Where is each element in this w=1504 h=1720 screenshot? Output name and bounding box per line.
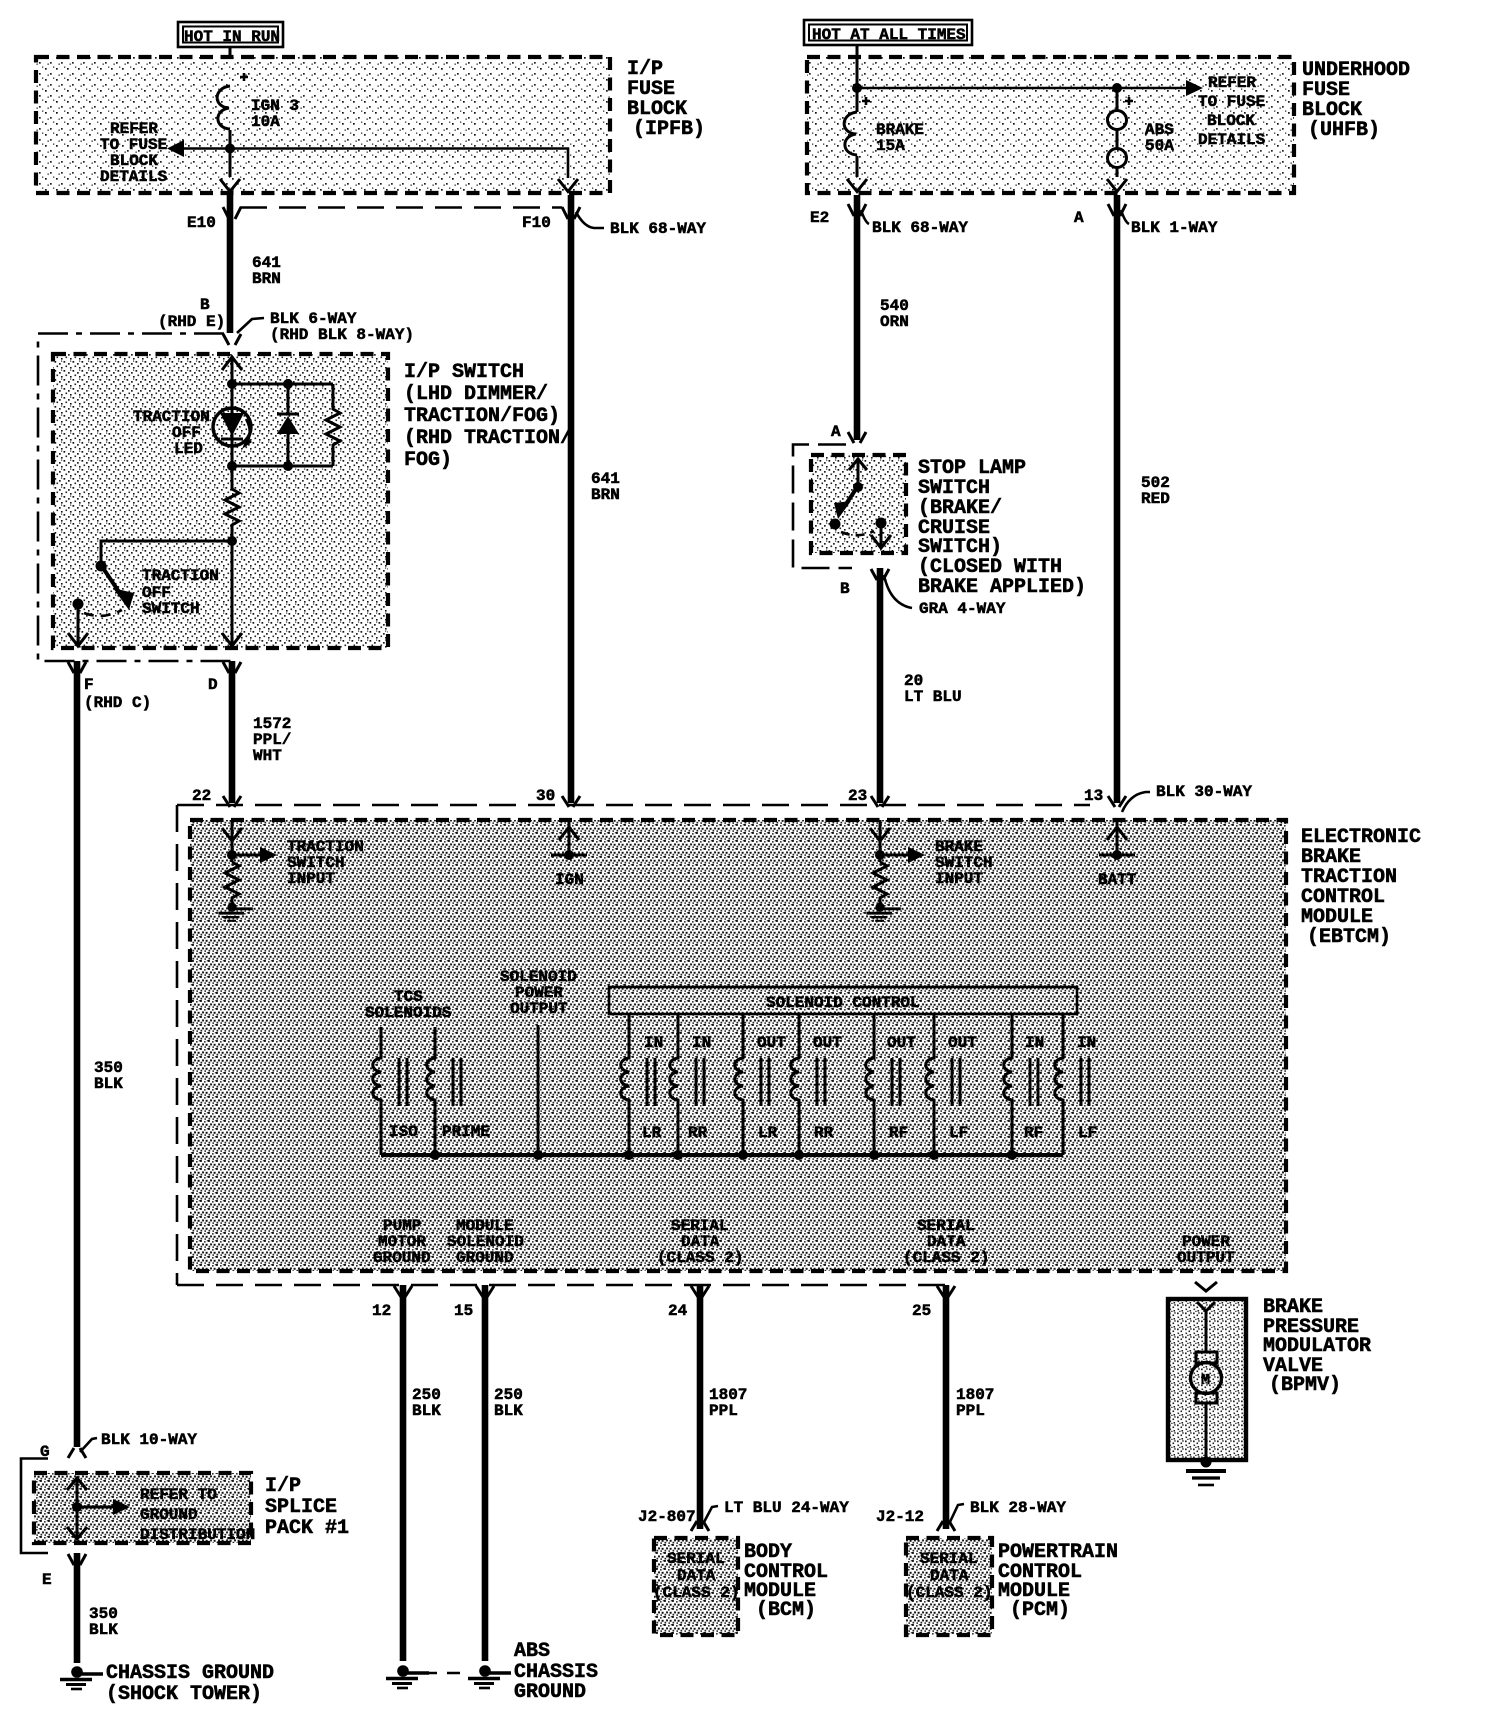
svg-text:IN: IN xyxy=(692,1034,711,1052)
svg-text:OUT: OUT xyxy=(813,1034,842,1052)
svg-text:PPL: PPL xyxy=(956,1402,985,1420)
svg-text:HOT IN RUN: HOT IN RUN xyxy=(184,28,280,46)
svg-text:23: 23 xyxy=(848,787,867,805)
svg-text:(PCM): (PCM) xyxy=(1010,1599,1070,1622)
svg-text:(IPFB): (IPFB) xyxy=(633,118,705,141)
svg-text:LT BLU 24-WAY: LT BLU 24-WAY xyxy=(724,1499,849,1517)
svg-text:ORN: ORN xyxy=(880,313,909,331)
svg-text:GROUND: GROUND xyxy=(456,1249,514,1267)
svg-text:DATA: DATA xyxy=(677,1567,716,1585)
svg-text:BLK 1-WAY: BLK 1-WAY xyxy=(1131,219,1218,237)
svg-text:TRACTION/FOG): TRACTION/FOG) xyxy=(404,405,560,428)
svg-text:(RHD BLK 8-WAY): (RHD BLK 8-WAY) xyxy=(270,326,414,344)
svg-text:(UHFB): (UHFB) xyxy=(1308,119,1380,142)
svg-text:LR: LR xyxy=(758,1124,778,1142)
svg-text:GROUND: GROUND xyxy=(514,1681,586,1704)
svg-text:SERIAL: SERIAL xyxy=(920,1550,978,1568)
svg-text:(SHOCK TOWER): (SHOCK TOWER) xyxy=(106,1683,262,1706)
svg-text:GROUND: GROUND xyxy=(140,1506,198,1524)
svg-text:J2-807: J2-807 xyxy=(638,1508,696,1526)
svg-text:BLK: BLK xyxy=(494,1402,523,1420)
svg-text:TO FUSE: TO FUSE xyxy=(1198,93,1265,111)
svg-text:LR: LR xyxy=(642,1124,662,1142)
svg-text:IN: IN xyxy=(1025,1034,1044,1052)
svg-text:50A: 50A xyxy=(1145,137,1174,155)
svg-text:TRACTION: TRACTION xyxy=(142,567,219,585)
svg-text:BLK: BLK xyxy=(89,1621,118,1639)
svg-text:OUT: OUT xyxy=(757,1034,786,1052)
svg-text:RF: RF xyxy=(889,1124,908,1142)
svg-text:LF: LF xyxy=(1078,1124,1097,1142)
svg-text:DETAILS: DETAILS xyxy=(1198,131,1266,149)
svg-text:BLK 68-WAY: BLK 68-WAY xyxy=(610,220,706,238)
svg-text:SPLICE: SPLICE xyxy=(265,1496,337,1519)
svg-text:BLOCK: BLOCK xyxy=(1207,112,1255,130)
svg-text:(CLASS 2): (CLASS 2) xyxy=(903,1249,989,1267)
svg-text:DATA: DATA xyxy=(930,1567,969,1585)
svg-text:HOT AT ALL TIMES: HOT AT ALL TIMES xyxy=(812,26,966,44)
svg-text:(BPMV): (BPMV) xyxy=(1269,1374,1341,1397)
svg-text:BLK 28-WAY: BLK 28-WAY xyxy=(970,1499,1066,1517)
svg-text:25: 25 xyxy=(912,1302,931,1320)
svg-text:BLK: BLK xyxy=(412,1402,441,1420)
svg-text:IN: IN xyxy=(1077,1034,1096,1052)
svg-text:30: 30 xyxy=(536,787,555,805)
svg-text:15: 15 xyxy=(454,1302,473,1320)
svg-text:E10: E10 xyxy=(187,214,216,232)
svg-text:13: 13 xyxy=(1084,787,1103,805)
svg-text:OUTPUT: OUTPUT xyxy=(510,1000,568,1018)
svg-text:OUT: OUT xyxy=(887,1034,916,1052)
svg-text:LT BLU: LT BLU xyxy=(904,688,962,706)
svg-text:BLK: BLK xyxy=(94,1075,123,1093)
svg-text:BLK 30-WAY: BLK 30-WAY xyxy=(1156,783,1252,801)
svg-text:10A: 10A xyxy=(251,113,280,131)
svg-text:DETAILS: DETAILS xyxy=(100,168,168,186)
svg-text:(LHD DIMMER/: (LHD DIMMER/ xyxy=(404,383,548,406)
svg-text:WHT: WHT xyxy=(253,747,282,765)
svg-text:REFER: REFER xyxy=(1208,74,1256,92)
svg-text:RF: RF xyxy=(1024,1124,1043,1142)
svg-text:SOLENOIDS: SOLENOIDS xyxy=(365,1004,452,1022)
svg-text:BATT: BATT xyxy=(1098,871,1137,889)
svg-text:RR: RR xyxy=(814,1124,834,1142)
svg-text:OUT: OUT xyxy=(948,1034,977,1052)
svg-text:GROUND: GROUND xyxy=(373,1249,431,1267)
svg-text:B: B xyxy=(840,580,850,598)
svg-text:BRN: BRN xyxy=(591,486,620,504)
svg-text:B: B xyxy=(200,296,210,314)
svg-text:DISTRIBUTION: DISTRIBUTION xyxy=(140,1526,255,1544)
svg-text:I/P: I/P xyxy=(265,1475,301,1498)
svg-text:LED: LED xyxy=(174,440,203,458)
svg-text:A: A xyxy=(1074,209,1084,227)
svg-text:ABS: ABS xyxy=(514,1640,550,1663)
svg-text:SERIAL: SERIAL xyxy=(667,1550,725,1568)
svg-text:(CLASS 2): (CLASS 2) xyxy=(657,1249,743,1267)
svg-text:BLK 10-WAY: BLK 10-WAY xyxy=(101,1431,197,1449)
svg-text:M: M xyxy=(1201,1372,1210,1389)
svg-text:IN: IN xyxy=(644,1034,663,1052)
svg-text:(RHD E): (RHD E) xyxy=(158,313,225,331)
svg-text:D: D xyxy=(208,676,218,694)
svg-text:(CLASS 2): (CLASS 2) xyxy=(906,1584,992,1602)
svg-text:GRA 4-WAY: GRA 4-WAY xyxy=(919,600,1006,618)
svg-text:PPL: PPL xyxy=(709,1402,738,1420)
svg-text:(EBTCM): (EBTCM) xyxy=(1307,926,1391,949)
svg-text:I/P SWITCH: I/P SWITCH xyxy=(404,361,524,384)
svg-text:SWITCH: SWITCH xyxy=(142,600,200,618)
svg-text:ISO: ISO xyxy=(389,1123,418,1141)
svg-text:BLK 68-WAY: BLK 68-WAY xyxy=(872,219,968,237)
svg-text:PRIME: PRIME xyxy=(442,1123,490,1141)
svg-text:RED: RED xyxy=(1141,490,1170,508)
svg-text:INPUT: INPUT xyxy=(935,870,983,888)
svg-text:E2: E2 xyxy=(810,209,829,227)
svg-text:12: 12 xyxy=(372,1302,391,1320)
svg-text:BRN: BRN xyxy=(252,270,281,288)
svg-text:FOG): FOG) xyxy=(404,449,452,472)
svg-text:OUTPUT: OUTPUT xyxy=(1177,1249,1235,1267)
svg-text:(RHD C): (RHD C) xyxy=(84,694,151,712)
svg-text:F: F xyxy=(84,676,94,694)
svg-text:IGN: IGN xyxy=(555,871,584,889)
svg-text:INPUT: INPUT xyxy=(287,870,335,888)
svg-text:24: 24 xyxy=(668,1302,688,1320)
svg-text:BRAKE APPLIED): BRAKE APPLIED) xyxy=(918,576,1086,599)
svg-text:(CLASS 2): (CLASS 2) xyxy=(653,1584,739,1602)
svg-text:SOLENOID CONTROL: SOLENOID CONTROL xyxy=(766,994,920,1012)
svg-text:E: E xyxy=(42,1571,52,1589)
svg-text:F10: F10 xyxy=(522,214,551,232)
svg-text:CHASSIS GROUND: CHASSIS GROUND xyxy=(106,1662,274,1685)
svg-text:J2-12: J2-12 xyxy=(876,1508,924,1526)
svg-text:A: A xyxy=(831,423,841,441)
svg-text:(RHD TRACTION/: (RHD TRACTION/ xyxy=(404,427,572,450)
svg-text:LF: LF xyxy=(949,1124,968,1142)
svg-text:RR: RR xyxy=(688,1124,708,1142)
svg-text:(BCM): (BCM) xyxy=(756,1599,816,1622)
svg-text:PACK #1: PACK #1 xyxy=(265,1517,349,1540)
svg-text:REFER TO: REFER TO xyxy=(140,1486,217,1504)
svg-text:15A: 15A xyxy=(876,137,905,155)
svg-text:22: 22 xyxy=(192,787,211,805)
